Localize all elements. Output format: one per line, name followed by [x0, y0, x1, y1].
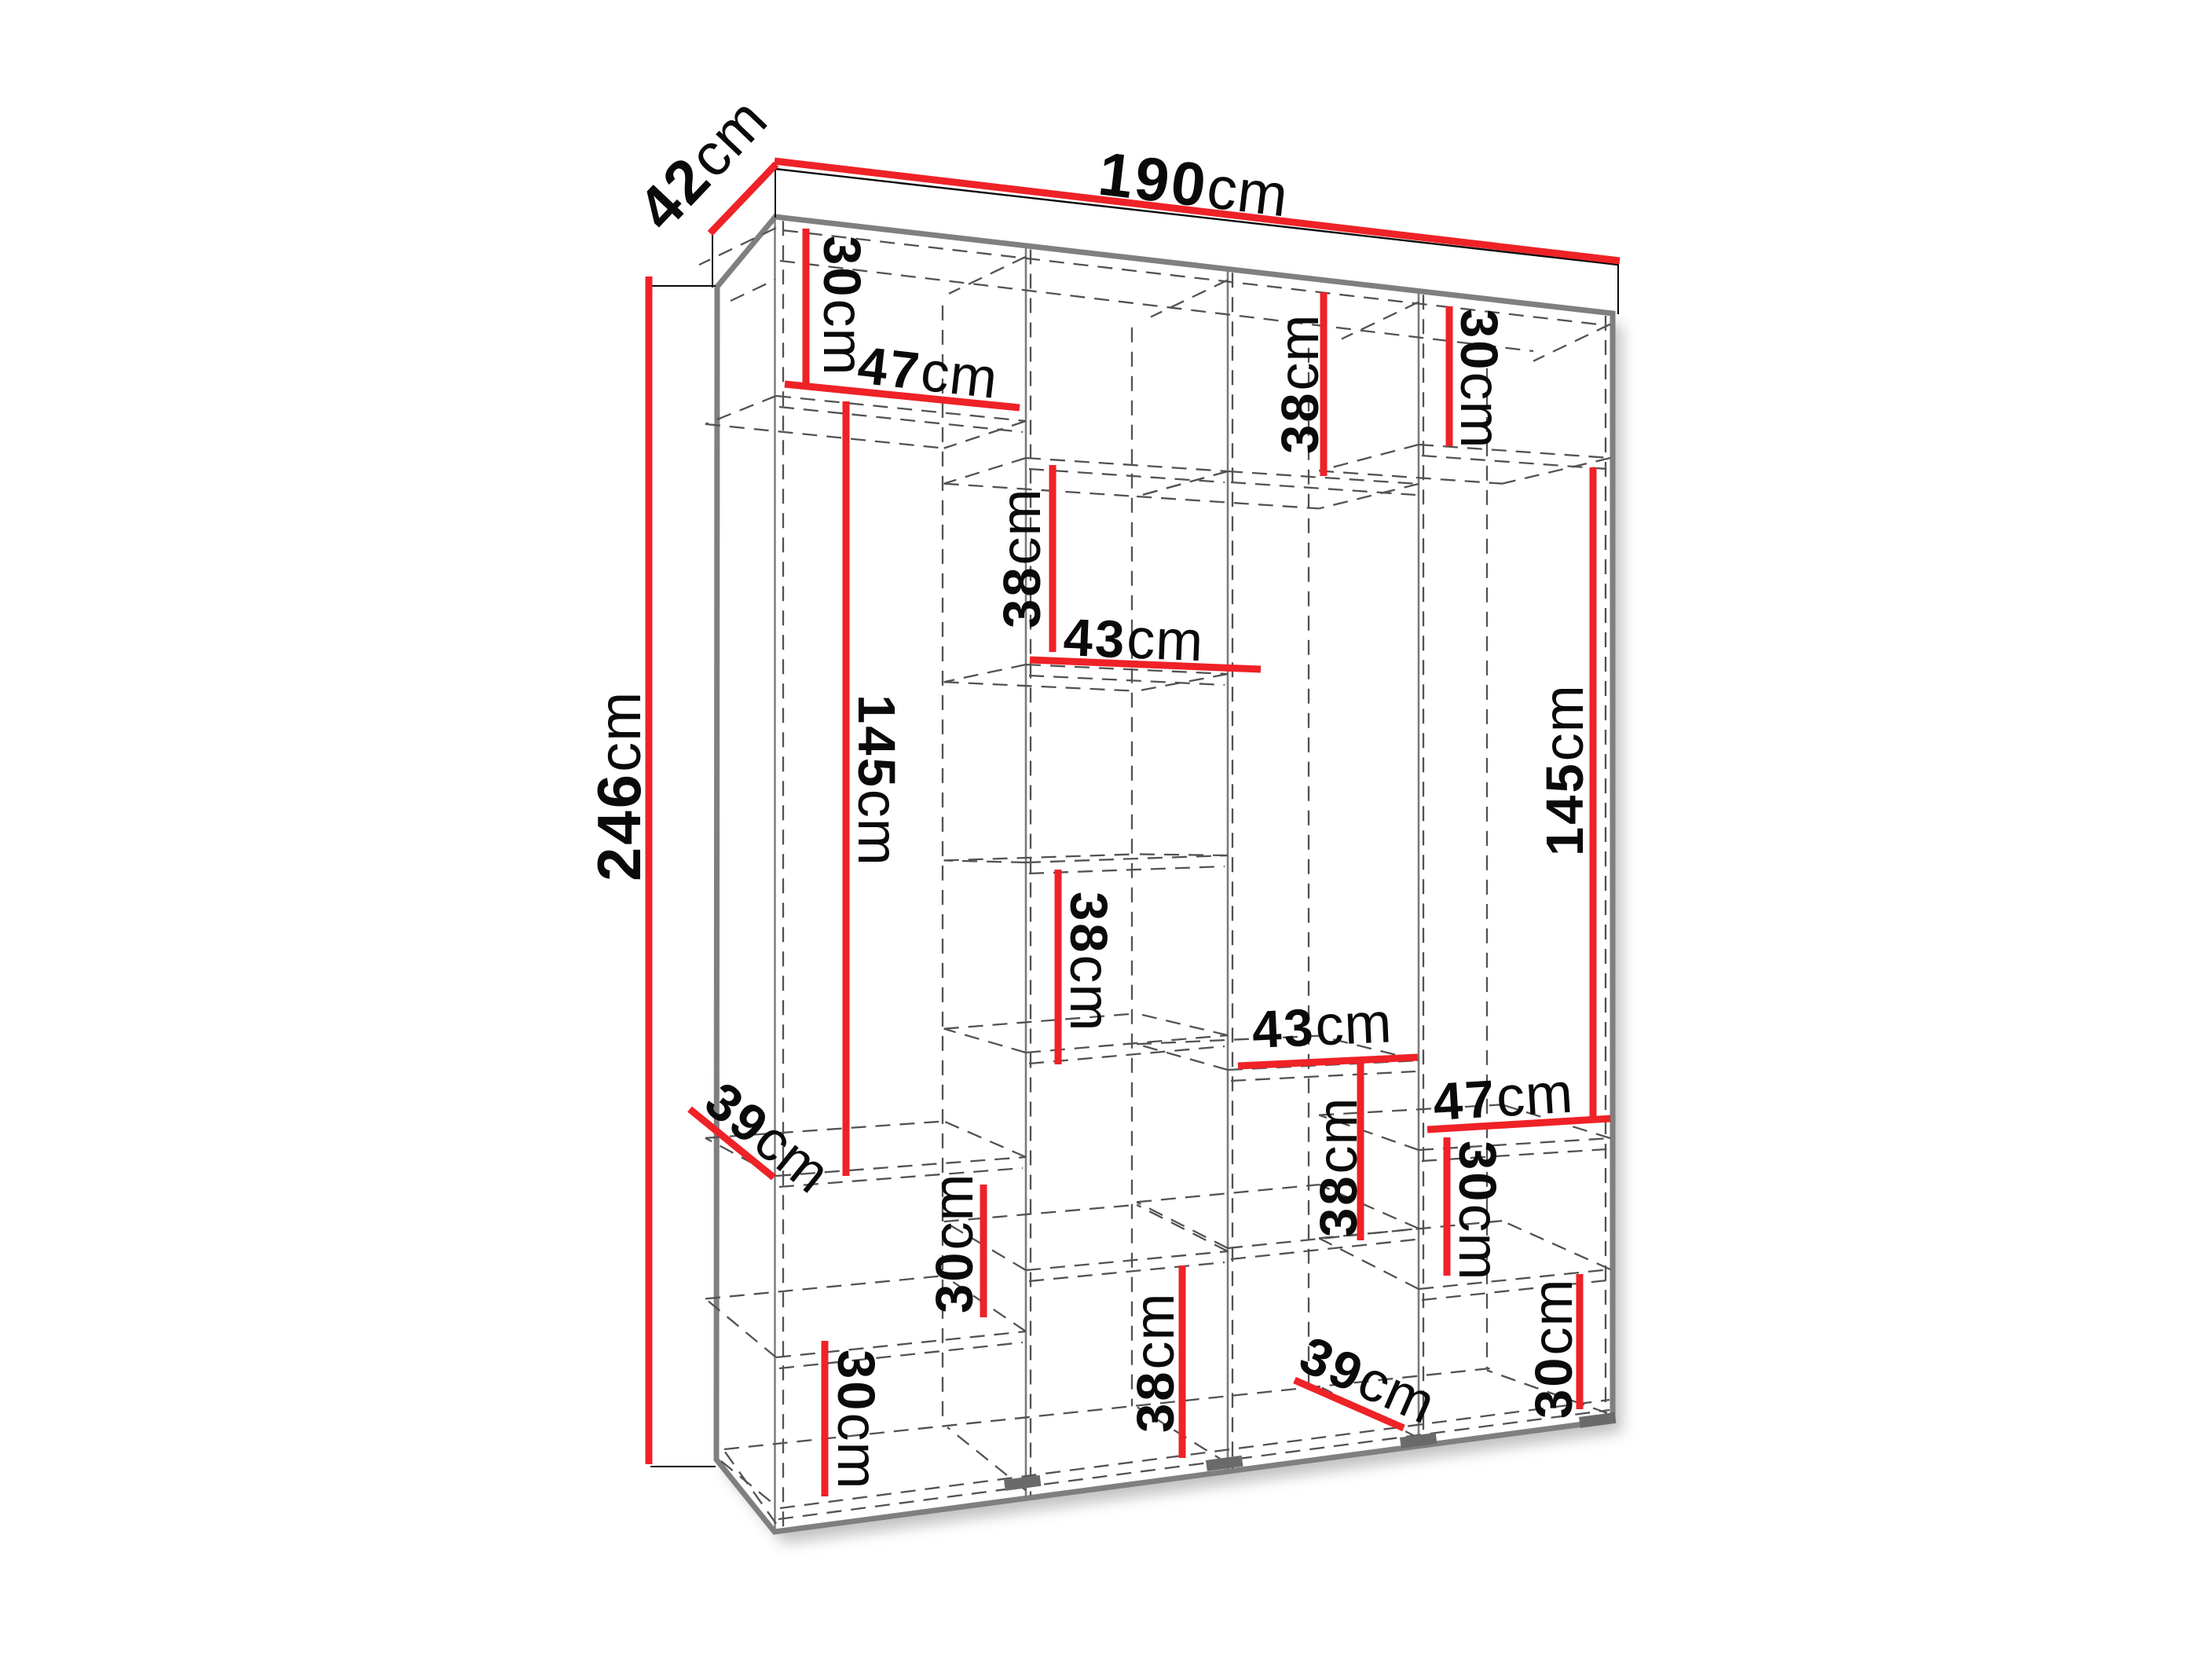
svg-text:145cm: 145cm: [1533, 684, 1595, 856]
svg-text:38cm: 38cm: [1123, 1292, 1186, 1433]
svg-text:38cm: 38cm: [1306, 1097, 1369, 1237]
svg-text:43cm: 43cm: [1251, 991, 1393, 1060]
svg-text:38cm: 38cm: [1268, 313, 1331, 454]
svg-text:47cm: 47cm: [1431, 1062, 1575, 1133]
svg-text:30cm: 30cm: [1448, 309, 1511, 449]
svg-text:145cm: 145cm: [846, 694, 909, 866]
svg-text:30cm: 30cm: [826, 1350, 888, 1490]
svg-text:43cm: 43cm: [1062, 605, 1205, 673]
svg-text:30cm: 30cm: [1447, 1141, 1510, 1281]
svg-text:246cm: 246cm: [584, 691, 654, 881]
svg-text:30cm: 30cm: [1522, 1278, 1584, 1419]
svg-text:30cm: 30cm: [922, 1173, 985, 1313]
svg-text:38cm: 38cm: [1058, 892, 1121, 1032]
svg-text:38cm: 38cm: [990, 488, 1053, 628]
